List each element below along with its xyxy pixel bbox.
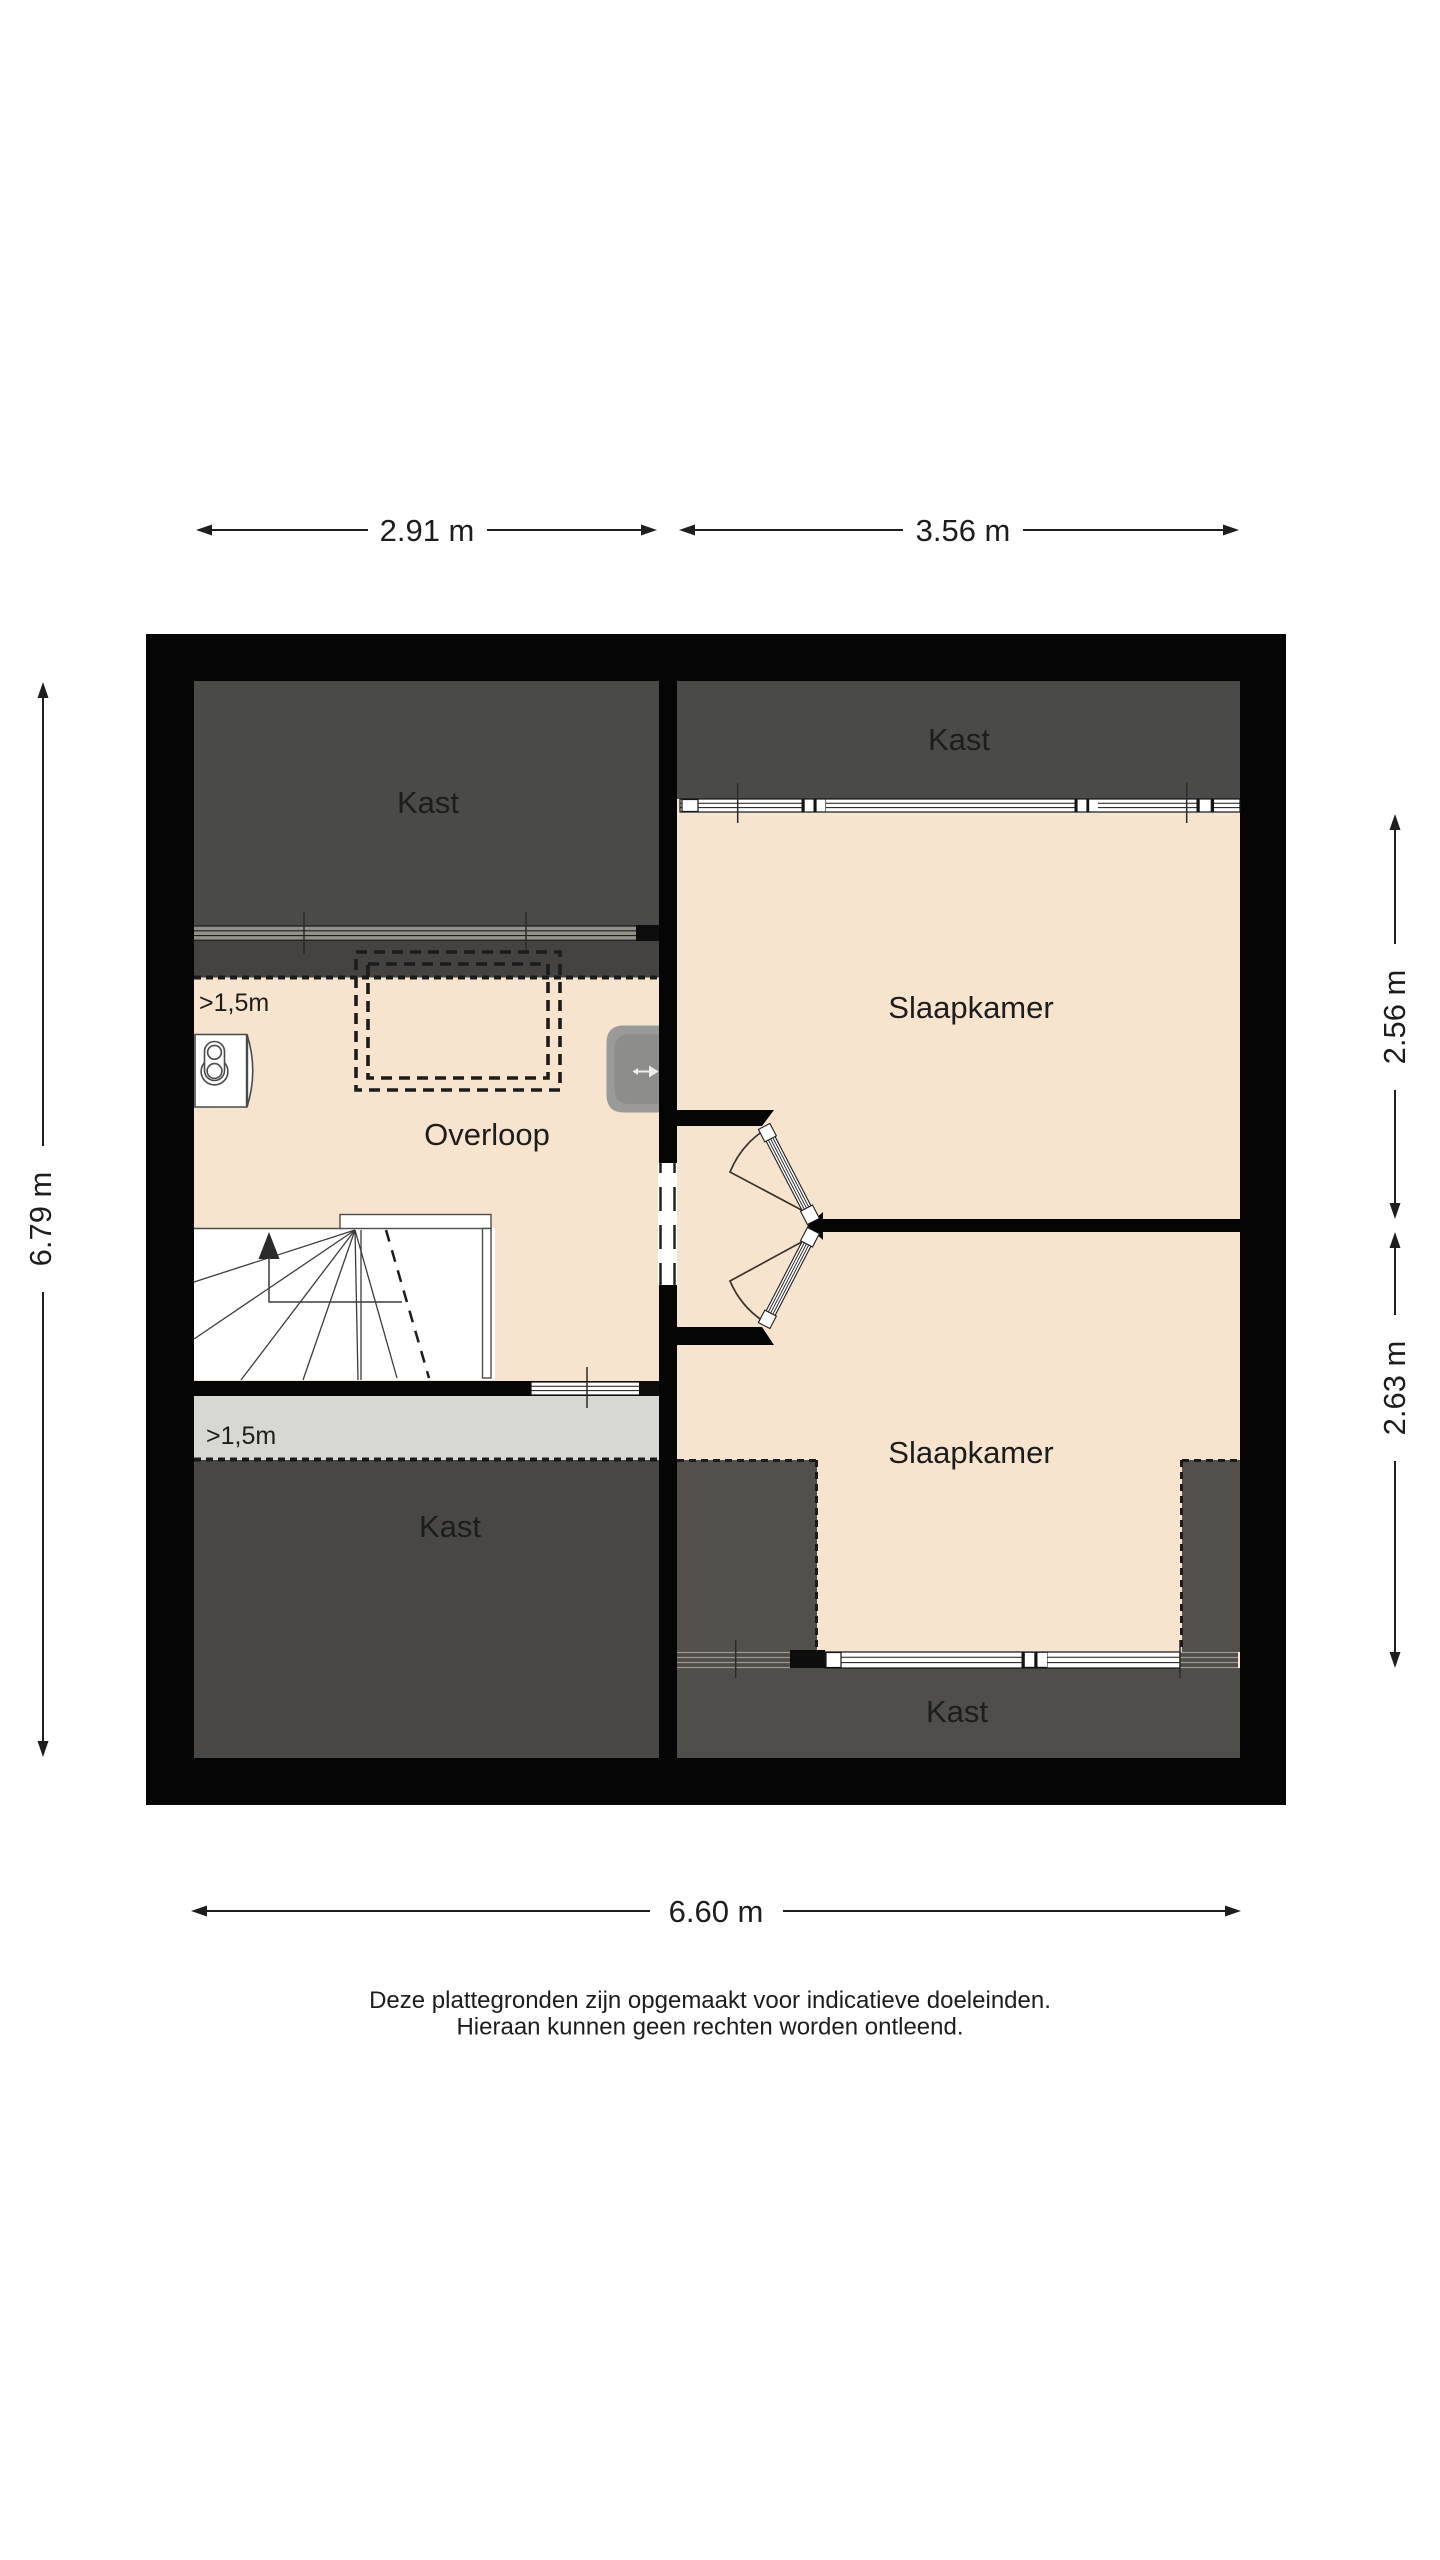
svg-text:Kast: Kast (419, 1509, 481, 1544)
svg-text:Kast: Kast (928, 722, 990, 757)
svg-text:Slaapkamer: Slaapkamer (888, 1435, 1053, 1470)
svg-text:2.63 m: 2.63 m (1377, 1341, 1412, 1436)
svg-text:Slaapkamer: Slaapkamer (888, 990, 1053, 1025)
svg-text:2.91 m: 2.91 m (380, 513, 475, 548)
svg-text:3.56 m: 3.56 m (916, 513, 1011, 548)
svg-text:6.79 m: 6.79 m (23, 1172, 58, 1267)
svg-text:Overloop: Overloop (424, 1117, 550, 1152)
svg-text:>1,5m: >1,5m (199, 989, 269, 1017)
svg-text:6.60 m: 6.60 m (669, 1894, 764, 1929)
svg-text:Kast: Kast (926, 1694, 988, 1729)
svg-text:Kast: Kast (397, 785, 459, 820)
svg-text:>1,5m: >1,5m (206, 1422, 276, 1450)
svg-text:2.56 m: 2.56 m (1377, 970, 1412, 1065)
svg-text:Hieraan kunnen geen rechten wo: Hieraan kunnen geen rechten worden ontle… (456, 2014, 963, 2041)
svg-text:Deze plattegronden zijn opgema: Deze plattegronden zijn opgemaakt voor i… (369, 1987, 1051, 2014)
